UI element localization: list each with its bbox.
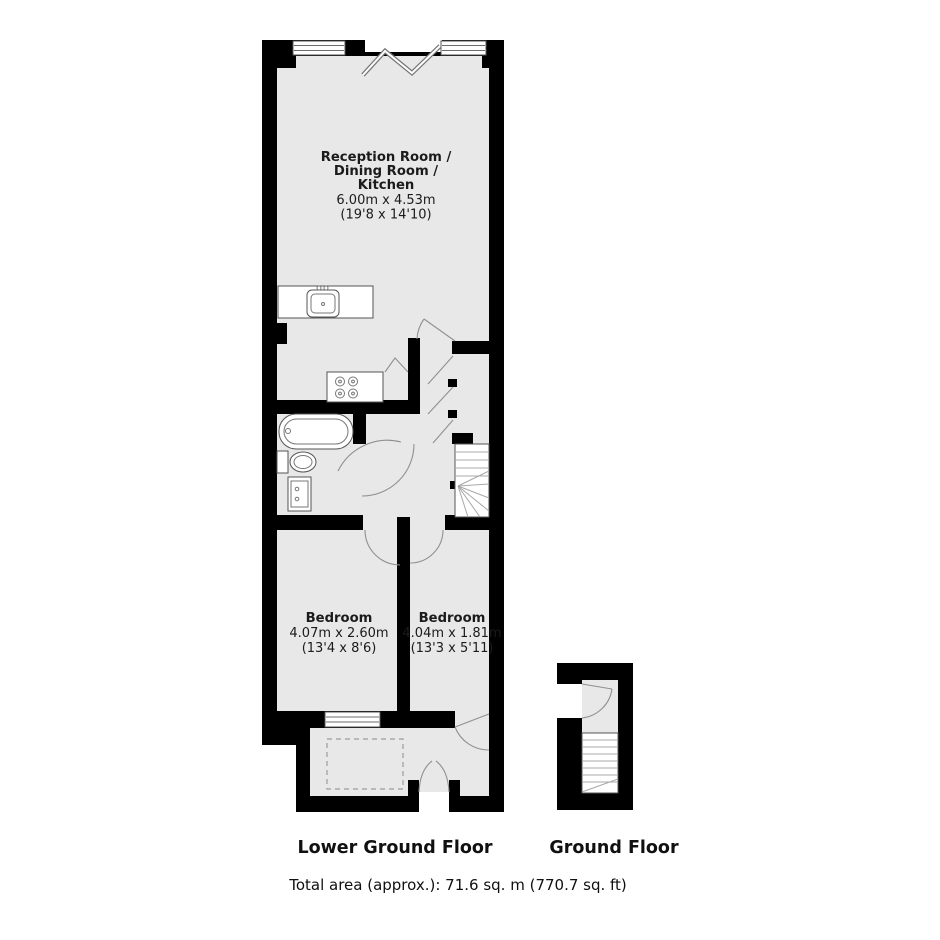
french-door-stub-right (449, 780, 460, 797)
wall-bottom (296, 796, 504, 812)
bedroom1-dims-ft: (13'4 x 8'6) (302, 641, 377, 656)
reception-label-line3: Kitchen (358, 178, 415, 193)
bedroom1-label: Bedroom (306, 611, 373, 626)
bifold-opening (365, 40, 442, 52)
stair-top-stub (452, 433, 473, 444)
bedroom2-label: Bedroom (419, 611, 486, 626)
wall-bedroom-divider (397, 517, 410, 728)
ground-floor-plan (557, 663, 633, 810)
reception-label-line2: Dining Room / (334, 164, 438, 179)
reception-label-line1: Reception Room / (321, 150, 452, 165)
window-bedroom1 (325, 712, 380, 727)
window-top-right (441, 41, 486, 55)
wardrobe-stub-2 (448, 410, 457, 418)
staircase-lower (455, 444, 489, 517)
wardrobe-stub-1 (448, 379, 457, 387)
french-door-stub-left (408, 780, 419, 797)
gf-door-opening (557, 684, 582, 718)
gf-stair-flight (582, 733, 618, 793)
wall-left (262, 40, 277, 745)
bedroom2-dims-m: 4.04m x 1.81m (402, 626, 501, 641)
french-door-opening (419, 792, 449, 812)
wall-hall-bedrooms-left (277, 515, 363, 530)
lower-ground-floor-title: Lower Ground Floor (297, 838, 492, 858)
wall-kitchen-hall (408, 338, 420, 414)
reception-dims-m: 6.00m x 4.53m (336, 193, 435, 208)
wall-bathroom-right (353, 410, 366, 444)
wall-right (489, 40, 504, 812)
lower-ground-floor-plan: Reception Room / Dining Room / Kitchen 6… (262, 40, 504, 812)
bedroom2-dims-ft: (13'3 x 5'11) (411, 641, 494, 656)
reception-dims-ft: (19'8 x 14'10) (340, 208, 431, 223)
toilet-cistern (277, 451, 288, 473)
wall-chimney-stub (277, 323, 287, 344)
window-top-left (293, 41, 345, 55)
captions: Lower Ground Floor Ground Floor Total ar… (288, 838, 679, 894)
bedroom1-dims-m: 4.07m x 2.60m (289, 626, 388, 641)
wall-corridor-top (452, 341, 489, 354)
ground-floor-title: Ground Floor (549, 838, 679, 858)
staircase-ground (582, 733, 618, 793)
floorplan-page: Reception Room / Dining Room / Kitchen 6… (0, 0, 940, 940)
total-area-caption: Total area (approx.): 71.6 sq. m (770.7 … (288, 876, 627, 894)
floorplan-drawing: Reception Room / Dining Room / Kitchen 6… (0, 0, 940, 940)
